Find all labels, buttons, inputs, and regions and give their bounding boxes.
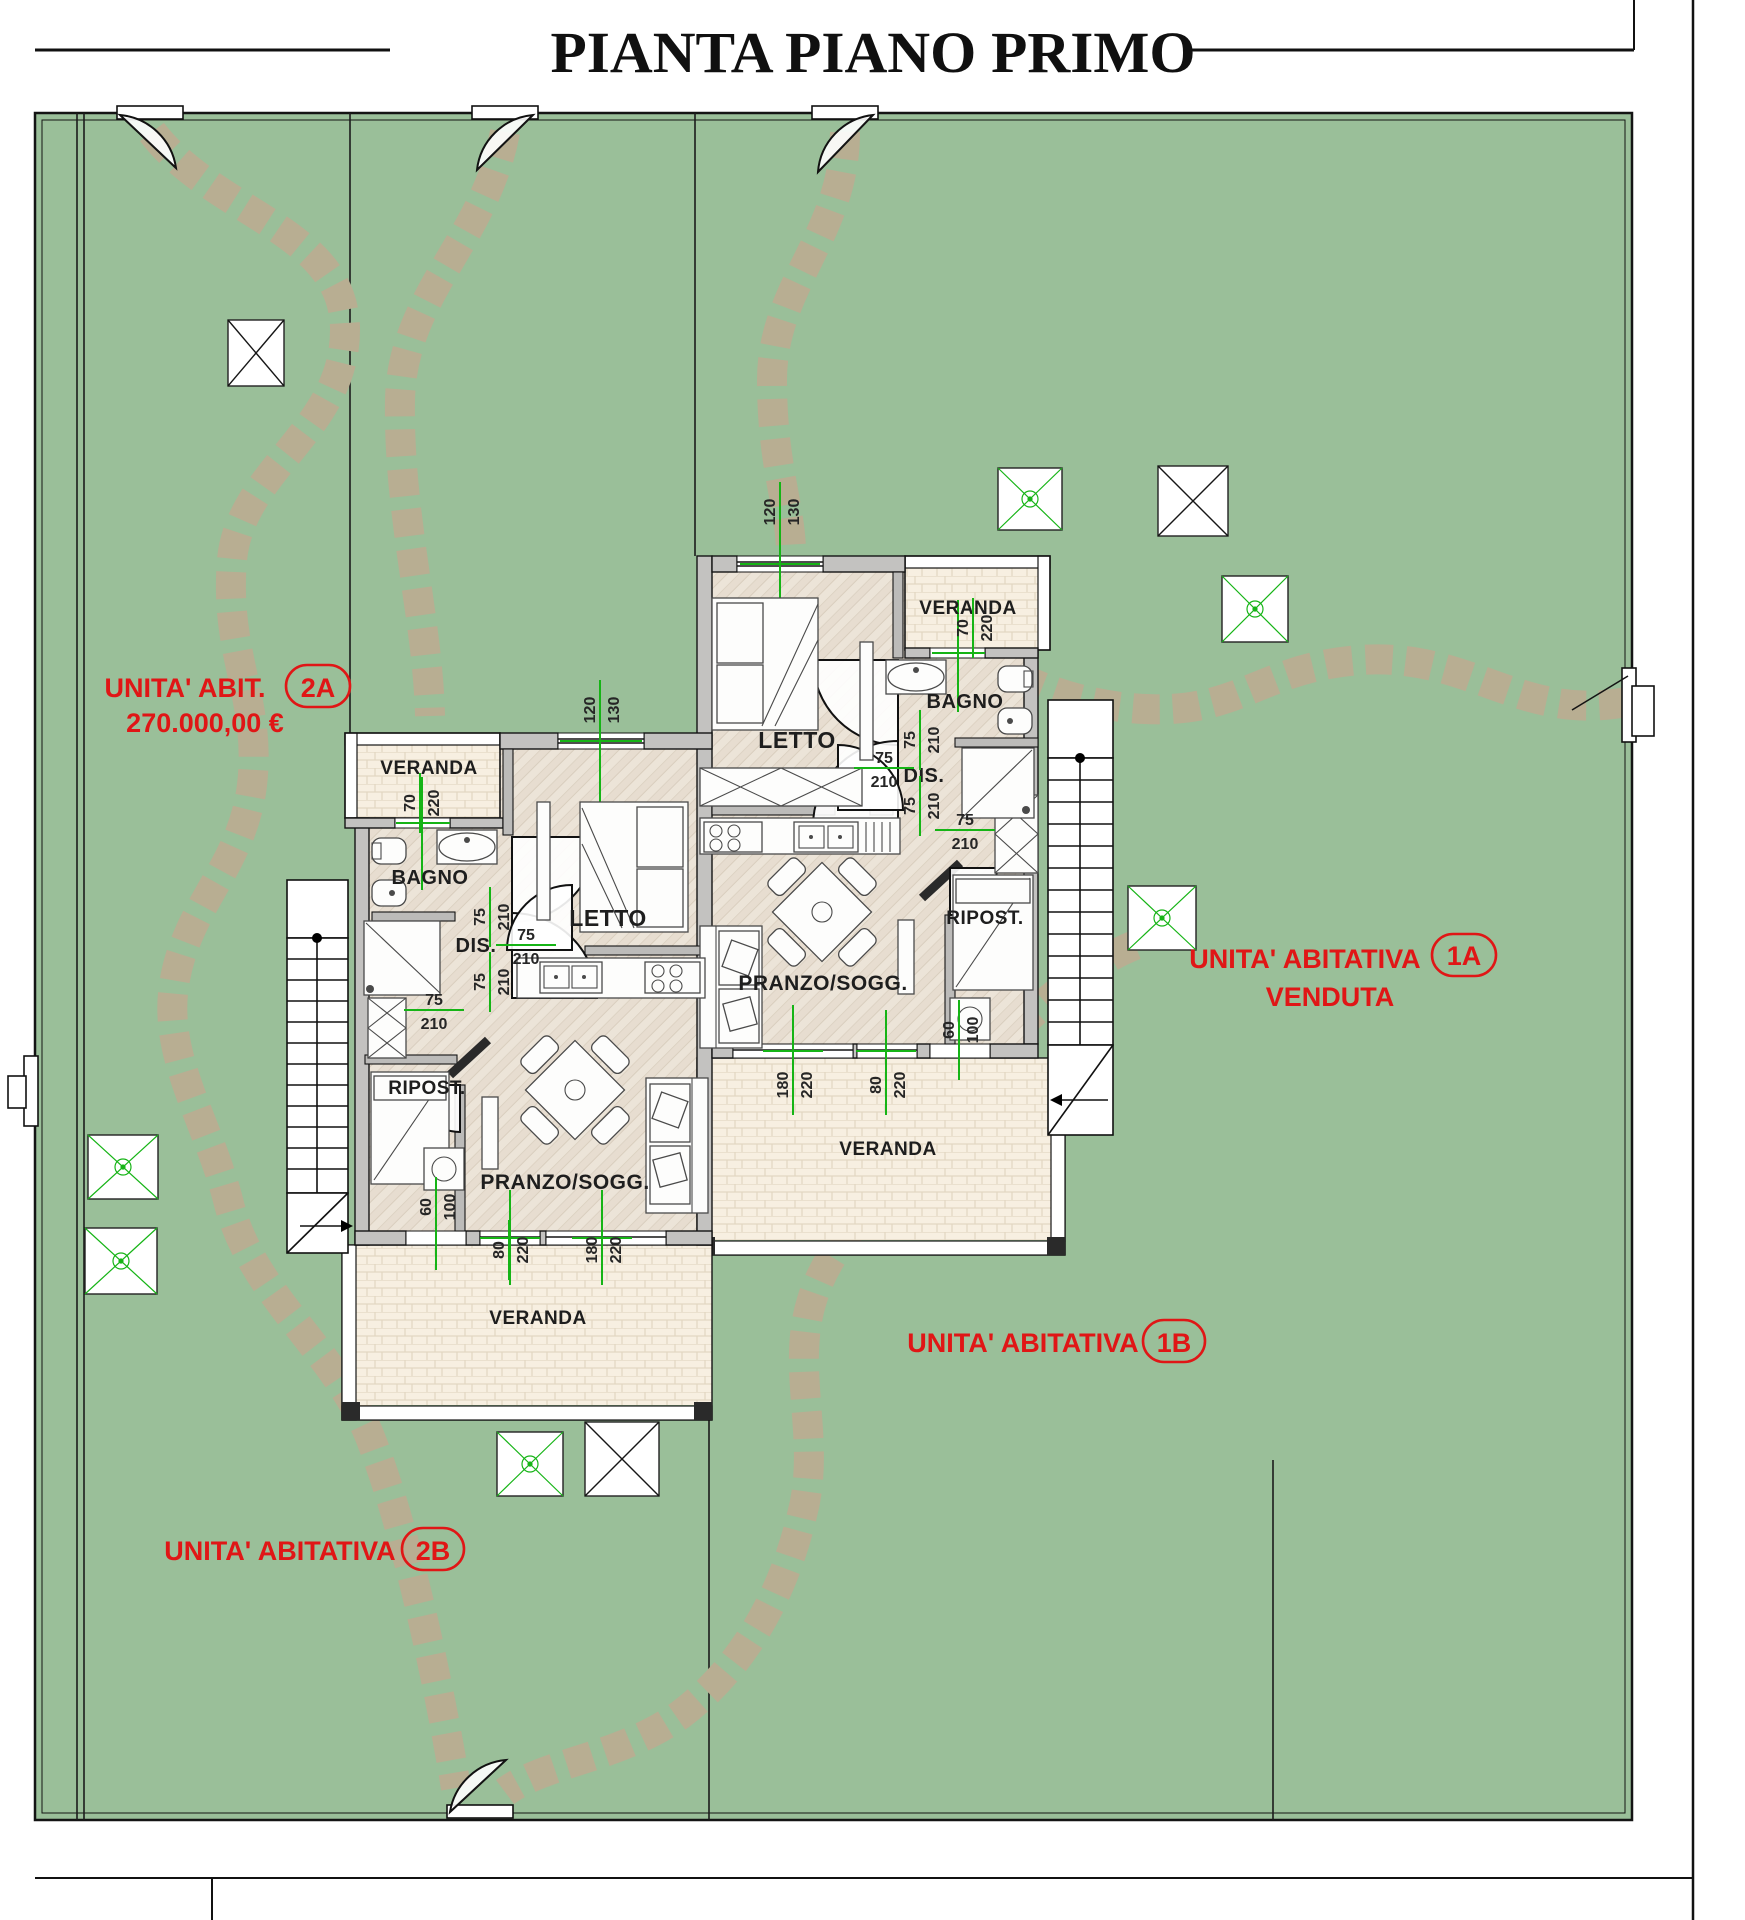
roof-window-icon	[585, 1422, 659, 1496]
svg-text:220: 220	[892, 1072, 909, 1099]
roof-window-icon	[1128, 886, 1196, 950]
svg-text:220: 220	[426, 790, 443, 817]
svg-text:220: 220	[515, 1237, 532, 1264]
svg-text:220: 220	[608, 1237, 625, 1264]
gate-left-edge	[8, 1056, 38, 1126]
unit-name: UNITA' ABITATIVA	[1189, 944, 1420, 974]
svg-text:210: 210	[952, 836, 979, 853]
svg-text:75: 75	[902, 731, 919, 749]
svg-text:210: 210	[513, 951, 540, 968]
unit-badge: 1A	[1447, 941, 1482, 971]
svg-text:210: 210	[496, 904, 513, 931]
wardrobe-tall	[860, 642, 873, 760]
svg-text:70: 70	[955, 619, 972, 637]
unit-name: UNITA' ABITATIVA	[164, 1536, 395, 1566]
svg-text:60: 60	[418, 1198, 435, 1216]
roof-window-icon	[998, 468, 1062, 530]
tv-cabinet	[482, 1097, 498, 1169]
room-label: LETTO	[569, 905, 646, 931]
unit-status: VENDUTA	[1266, 982, 1395, 1012]
kitchen	[517, 958, 705, 998]
svg-text:210: 210	[871, 774, 898, 791]
svg-text:120: 120	[582, 697, 599, 724]
wc	[998, 666, 1032, 692]
roof-window-icon	[228, 320, 284, 386]
svg-text:220: 220	[979, 615, 996, 642]
svg-text:75: 75	[472, 908, 489, 926]
unit-price: 270.000,00 €	[126, 708, 284, 738]
room-label: VERANDA	[489, 1308, 586, 1329]
svg-text:130: 130	[786, 499, 803, 526]
svg-text:80: 80	[491, 1241, 508, 1259]
wc	[372, 838, 406, 864]
staircase-left	[287, 880, 353, 1253]
svg-text:130: 130	[606, 697, 623, 724]
staircase-right	[1048, 700, 1113, 1135]
room-label: VERANDA	[380, 758, 477, 779]
room-label: RIPOST.	[946, 908, 1023, 929]
svg-text:100: 100	[965, 1017, 982, 1044]
room-label: RIPOST.	[388, 1078, 465, 1099]
roof-window-icon	[1158, 466, 1228, 536]
room-label: VERANDA	[919, 598, 1016, 619]
svg-text:120: 120	[762, 499, 779, 526]
svg-text:210: 210	[421, 1016, 448, 1033]
svg-text:210: 210	[926, 793, 943, 820]
unit-badge: 1B	[1157, 1328, 1192, 1358]
sofa	[646, 1078, 708, 1213]
svg-text:220: 220	[799, 1072, 816, 1099]
roof-window-icon	[1222, 576, 1288, 642]
kitchen	[700, 818, 900, 854]
wardrobe-tall	[537, 802, 550, 920]
svg-text:75: 75	[902, 797, 919, 815]
unit2-veranda-bottom	[342, 1245, 712, 1420]
svg-text:100: 100	[442, 1194, 459, 1221]
svg-text:75: 75	[517, 927, 535, 944]
plan-sheet: PIANTA PIANO PRIMO	[0, 0, 1745, 1920]
roof-window-icon	[85, 1228, 157, 1294]
room-label: LETTO	[758, 727, 835, 753]
svg-text:75: 75	[956, 812, 974, 829]
svg-text:75: 75	[472, 973, 489, 991]
svg-text:60: 60	[941, 1021, 958, 1039]
svg-text:80: 80	[868, 1076, 885, 1094]
unit-name: UNITA' ABIT.	[105, 673, 266, 703]
page-title: PIANTA PIANO PRIMO	[551, 20, 1196, 85]
svg-text:75: 75	[425, 992, 443, 1009]
roof-window-icon	[88, 1135, 158, 1199]
floor-plan-drawing: PIANTA PIANO PRIMO	[0, 0, 1745, 1920]
svg-text:70: 70	[402, 794, 419, 812]
unit-badge: 2B	[416, 1536, 451, 1566]
room-label: BAGNO	[392, 867, 469, 889]
unit-name: UNITA' ABITATIVA	[907, 1328, 1138, 1358]
svg-text:210: 210	[496, 969, 513, 996]
svg-text:180: 180	[775, 1072, 792, 1099]
roof-window-icon	[497, 1432, 563, 1496]
room-label: PRANZO/SOGG.	[480, 1171, 649, 1194]
svg-text:210: 210	[926, 727, 943, 754]
svg-text:75: 75	[875, 750, 893, 767]
unit-badge: 2A	[301, 673, 336, 703]
room-label: BAGNO	[927, 691, 1004, 713]
room-label: VERANDA	[839, 1139, 936, 1160]
wardrobe	[700, 768, 862, 806]
room-label: PRANZO/SOGG.	[738, 972, 907, 995]
svg-text:180: 180	[584, 1237, 601, 1264]
